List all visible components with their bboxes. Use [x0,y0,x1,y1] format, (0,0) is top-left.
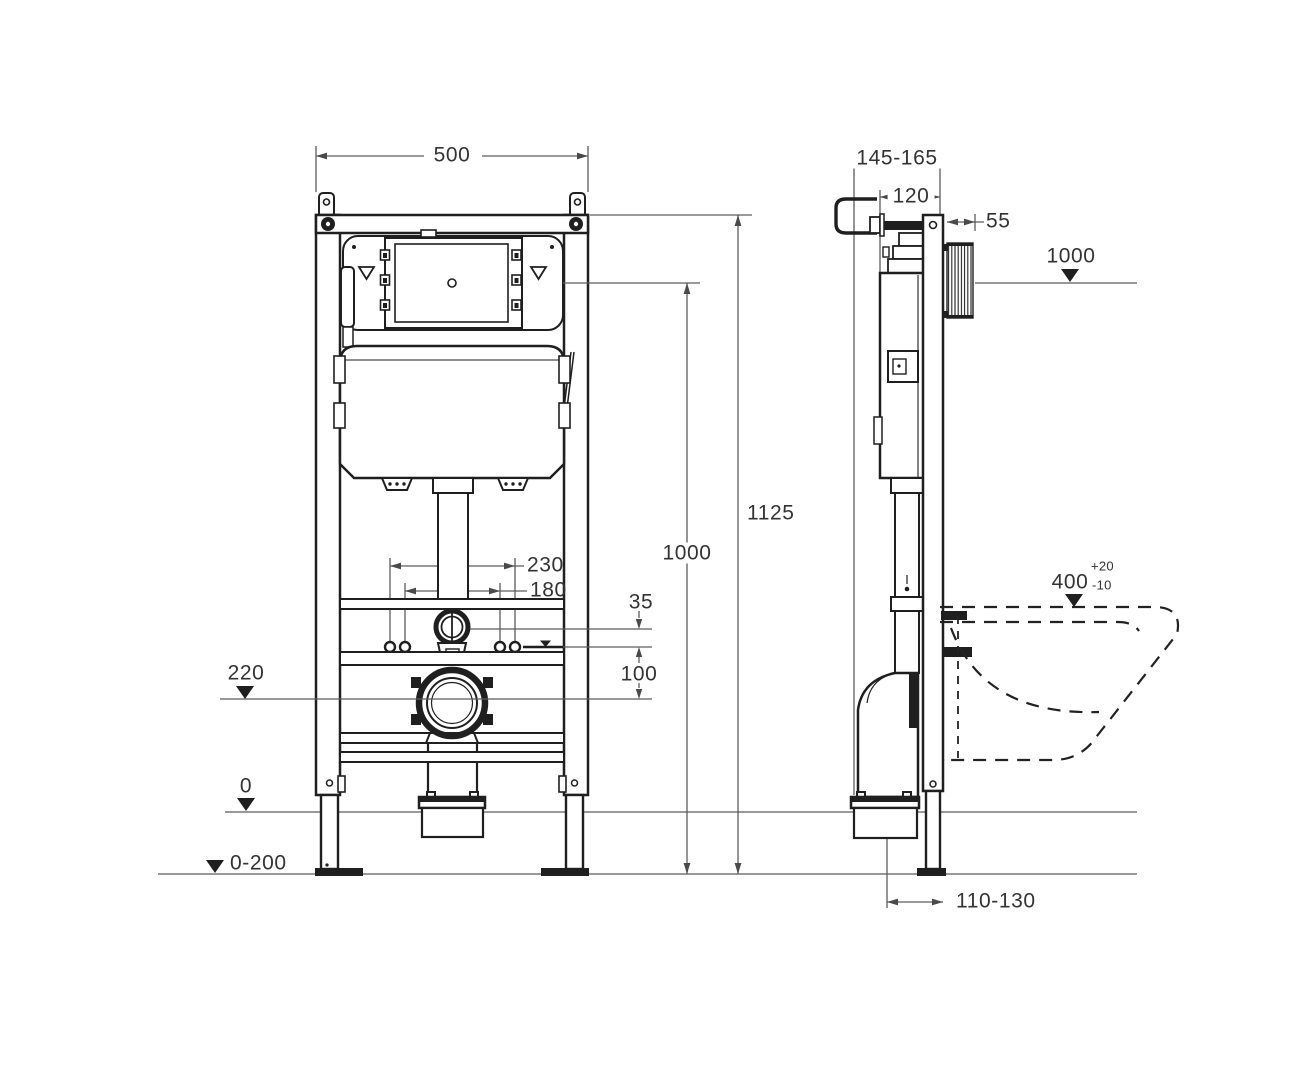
dim-ref-level-label: 1000 [1046,246,1095,267]
dim-actuation-height-label: 1000 [657,543,716,564]
front-view-cistern [334,230,574,600]
side-view [836,199,973,876]
installation-frame-drawing: 500 1125 1000 230 180 35 100 220 0 0-200… [0,0,1300,1083]
dim-cover-depth-label: 55 [986,211,1011,232]
dim-outlet-offset-label: 110-130 [956,891,1036,912]
dim-depth-range-label: 145-165 [851,148,942,169]
dim-fixing-inner-label: 180 [530,580,567,601]
dim-frame-width-label: 500 [434,145,471,166]
toilet-bowl-outline [940,607,1178,760]
dim-bowl-tol-minus-label: -10 [1092,579,1112,592]
dim-fixing-outer-label: 230 [527,555,564,576]
dimension-lines-under [158,146,1137,908]
dim-bowl-level-label: 400 [1052,572,1089,593]
dim-flush-gap-label: 35 [629,592,654,613]
front-view-lower [315,599,589,876]
dim-zero-level-label: 0 [240,776,252,797]
dim-drain-gap-label: 100 [621,664,658,685]
dim-bowl-tol-plus-label: +20 [1091,560,1114,573]
drawing-geometry [0,0,1300,1083]
dim-floor-range-label: 0-200 [230,853,287,874]
dim-overall-height-label: 1125 [747,503,795,524]
dim-drain-level-label: 220 [228,663,265,684]
dim-cistern-depth-label: 120 [888,186,935,207]
